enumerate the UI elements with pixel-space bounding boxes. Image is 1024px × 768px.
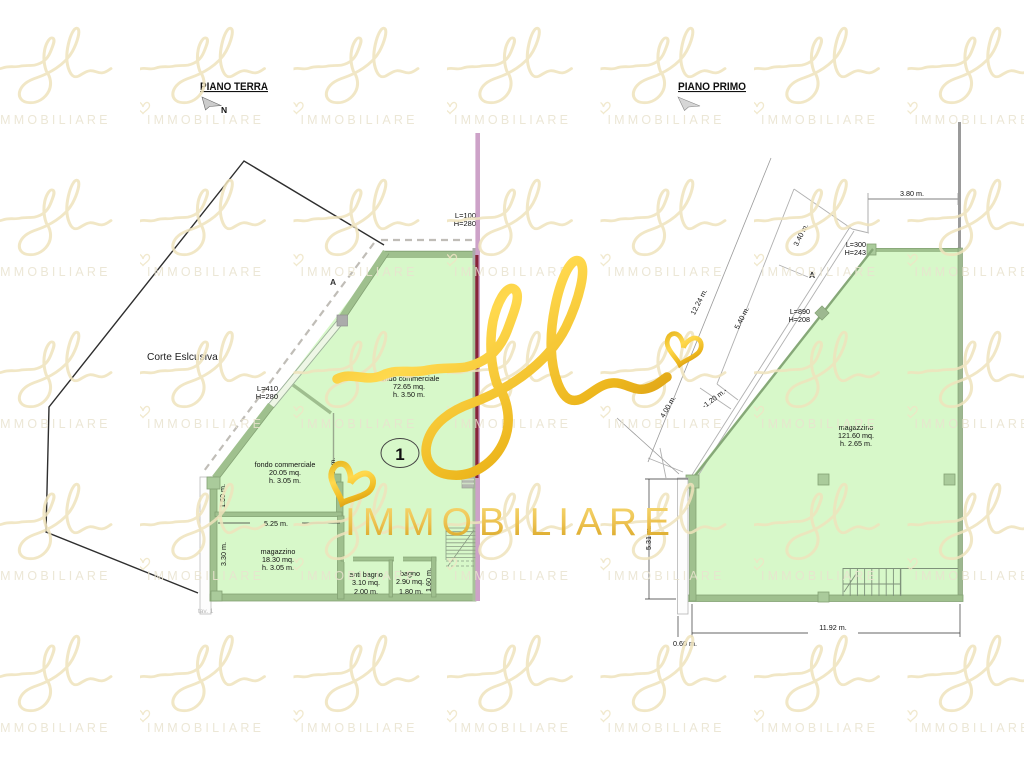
svg-text:IMMOBILIARE: IMMOBILIARE [345, 501, 676, 544]
